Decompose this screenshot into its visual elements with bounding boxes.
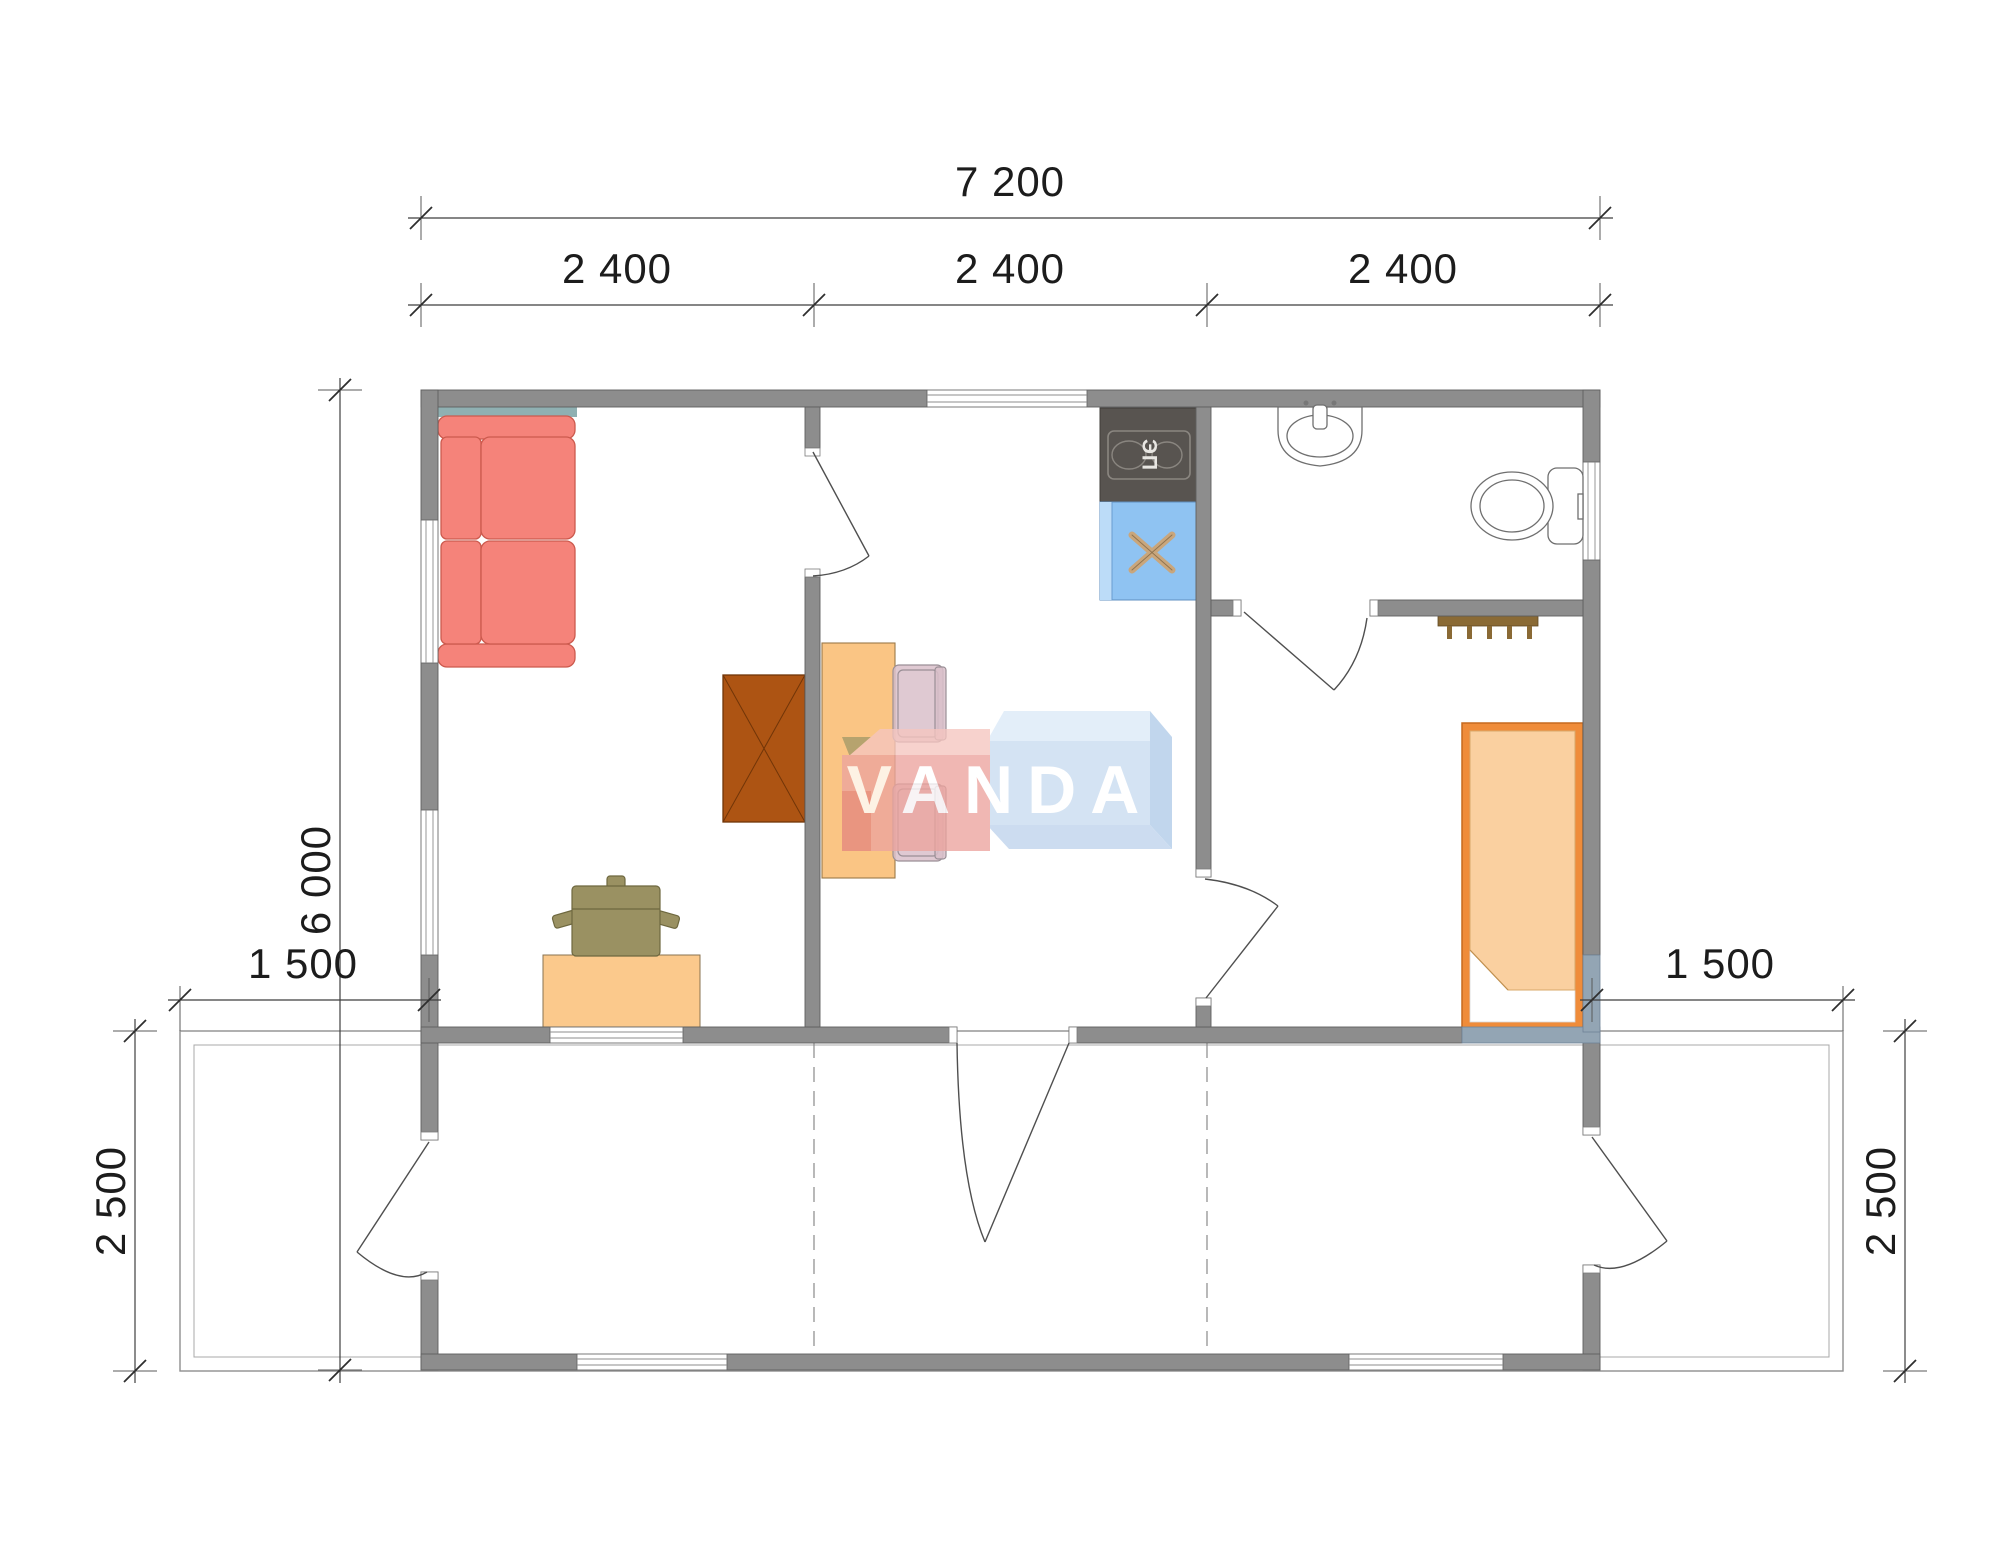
sofa-cushion-1 <box>481 437 575 539</box>
hook-4 <box>1507 626 1512 639</box>
dim-porch-left: 1 500 <box>168 940 441 1031</box>
floor-plan-drawing: ЭП <box>0 0 2000 1563</box>
sofa <box>438 416 575 667</box>
watermark-blue-top-face <box>987 711 1150 741</box>
watermark-blue-bottom-face <box>987 825 1172 849</box>
bathroom-sink <box>1278 401 1362 467</box>
window-under-desk <box>550 1027 683 1043</box>
wall-bottom-rooms-3 <box>1069 1027 1462 1043</box>
sofa-armrest-bottom <box>438 644 575 667</box>
coat-hooks <box>1438 616 1538 639</box>
sofa-armrest-top <box>438 416 575 439</box>
wall-w2-top <box>1196 407 1211 877</box>
door-entry <box>957 1043 1069 1242</box>
window-bathroom <box>1583 462 1600 560</box>
sofa-cushion-2 <box>481 541 575 644</box>
wall-bottom-rooms-1 <box>421 1027 550 1043</box>
living-room-furniture <box>437 406 805 1027</box>
wall-w1-bottom <box>805 577 820 1027</box>
window-veranda-right <box>1349 1354 1503 1370</box>
wall-w1-top <box>805 407 820 448</box>
dim-module-widths: 2 400 2 400 2 400 <box>408 245 1613 327</box>
door-veranda-left <box>357 1142 429 1277</box>
window-veranda-left <box>577 1354 727 1370</box>
hook-1 <box>1447 626 1452 639</box>
dim-label-module-2: 2 400 <box>955 245 1065 292</box>
sink-counter <box>1100 502 1198 600</box>
window-top <box>927 390 1087 407</box>
wall-right-3 <box>1583 1032 1600 1135</box>
sink-counter-edge <box>1100 502 1112 600</box>
window-left-1 <box>421 520 438 663</box>
dim-label-porch-right: 1 500 <box>1665 940 1775 987</box>
wall-veranda-bottom-2 <box>727 1354 1349 1370</box>
dim-label-veranda-right: 2 500 <box>1857 1146 1904 1256</box>
floor-plan-page: ЭП <box>0 0 2000 1563</box>
stove-counter: ЭП <box>1100 408 1198 502</box>
desk <box>543 955 700 1027</box>
wardrobe <box>723 675 805 822</box>
dim-label-module-1: 2 400 <box>562 245 672 292</box>
hook-5 <box>1527 626 1532 639</box>
stove-label: ЭП <box>1137 439 1160 471</box>
door-bedroom <box>1205 879 1278 998</box>
wall-top-left <box>421 390 927 407</box>
toilet <box>1471 468 1583 544</box>
wall-right-2 <box>1583 560 1600 955</box>
wall-right-1 <box>1583 390 1600 462</box>
dim-porch-right: 1 500 <box>1580 940 1855 1031</box>
windows <box>421 390 1600 1370</box>
bed-blanket <box>1470 731 1575 990</box>
door-jambs <box>421 448 1600 1280</box>
wall-top-right <box>1087 390 1600 407</box>
watermark-logo: VANDA <box>842 711 1172 851</box>
wall-veranda-bottom-3 <box>1503 1354 1600 1370</box>
wall-left-2 <box>421 663 438 810</box>
dim-label-veranda-left: 2 500 <box>87 1146 134 1256</box>
dim-label-total-depth: 6 000 <box>292 825 339 935</box>
wall-w3-right <box>1370 600 1583 616</box>
dim-label-module-3: 2 400 <box>1348 245 1458 292</box>
window-left-2 <box>421 810 438 955</box>
dim-label-total-width: 7 200 <box>955 158 1065 205</box>
door-veranda-right <box>1592 1137 1667 1268</box>
sofa-backrest-2 <box>441 541 481 644</box>
dim-total-width: 7 200 <box>408 158 1613 240</box>
bed <box>1462 723 1583 1030</box>
office-chair <box>552 876 680 956</box>
office-chair-seat <box>572 886 660 956</box>
door-bathroom <box>1244 612 1367 690</box>
wall-veranda-bottom-1 <box>421 1354 577 1370</box>
dim-total-depth: 6 000 <box>292 378 362 1383</box>
wall-bottom-rooms-2 <box>683 1027 957 1043</box>
sofa-backrest-1 <box>441 437 481 539</box>
dim-veranda-left: 2 500 <box>87 1019 157 1383</box>
door-living-room <box>813 452 869 576</box>
walls <box>421 390 1600 1370</box>
dim-veranda-right: 2 500 <box>1857 1019 1927 1383</box>
hook-3 <box>1487 626 1492 639</box>
bedroom-furniture <box>1438 616 1583 1030</box>
watermark-text: VANDA <box>847 752 1154 828</box>
bathroom-fixtures <box>1278 401 1583 545</box>
hook-2 <box>1467 626 1472 639</box>
dim-label-porch-left: 1 500 <box>248 940 358 987</box>
bed-head-bench <box>1462 1027 1600 1043</box>
wall-left-1 <box>421 390 438 520</box>
